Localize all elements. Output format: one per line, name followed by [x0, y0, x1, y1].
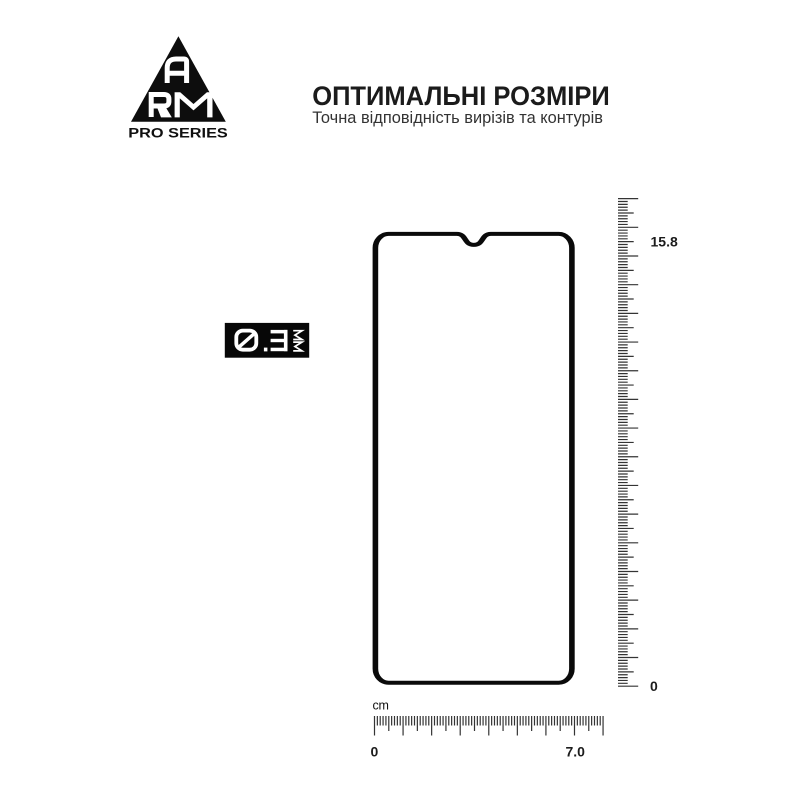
- svg-text:0: 0: [371, 744, 379, 760]
- svg-text:PRO SERIES: PRO SERIES: [128, 126, 228, 142]
- svg-text:Точна відповідність вирізів та: Точна відповідність вирізів та контурів: [312, 108, 603, 127]
- svg-text:0: 0: [650, 678, 658, 694]
- svg-text:7.0: 7.0: [566, 744, 586, 760]
- svg-text:ОПТИМАЛЬНІ РОЗМІРИ: ОПТИМАЛЬНІ РОЗМІРИ: [312, 81, 610, 111]
- svg-text:cm: cm: [373, 699, 389, 713]
- svg-text:15.8: 15.8: [651, 234, 678, 250]
